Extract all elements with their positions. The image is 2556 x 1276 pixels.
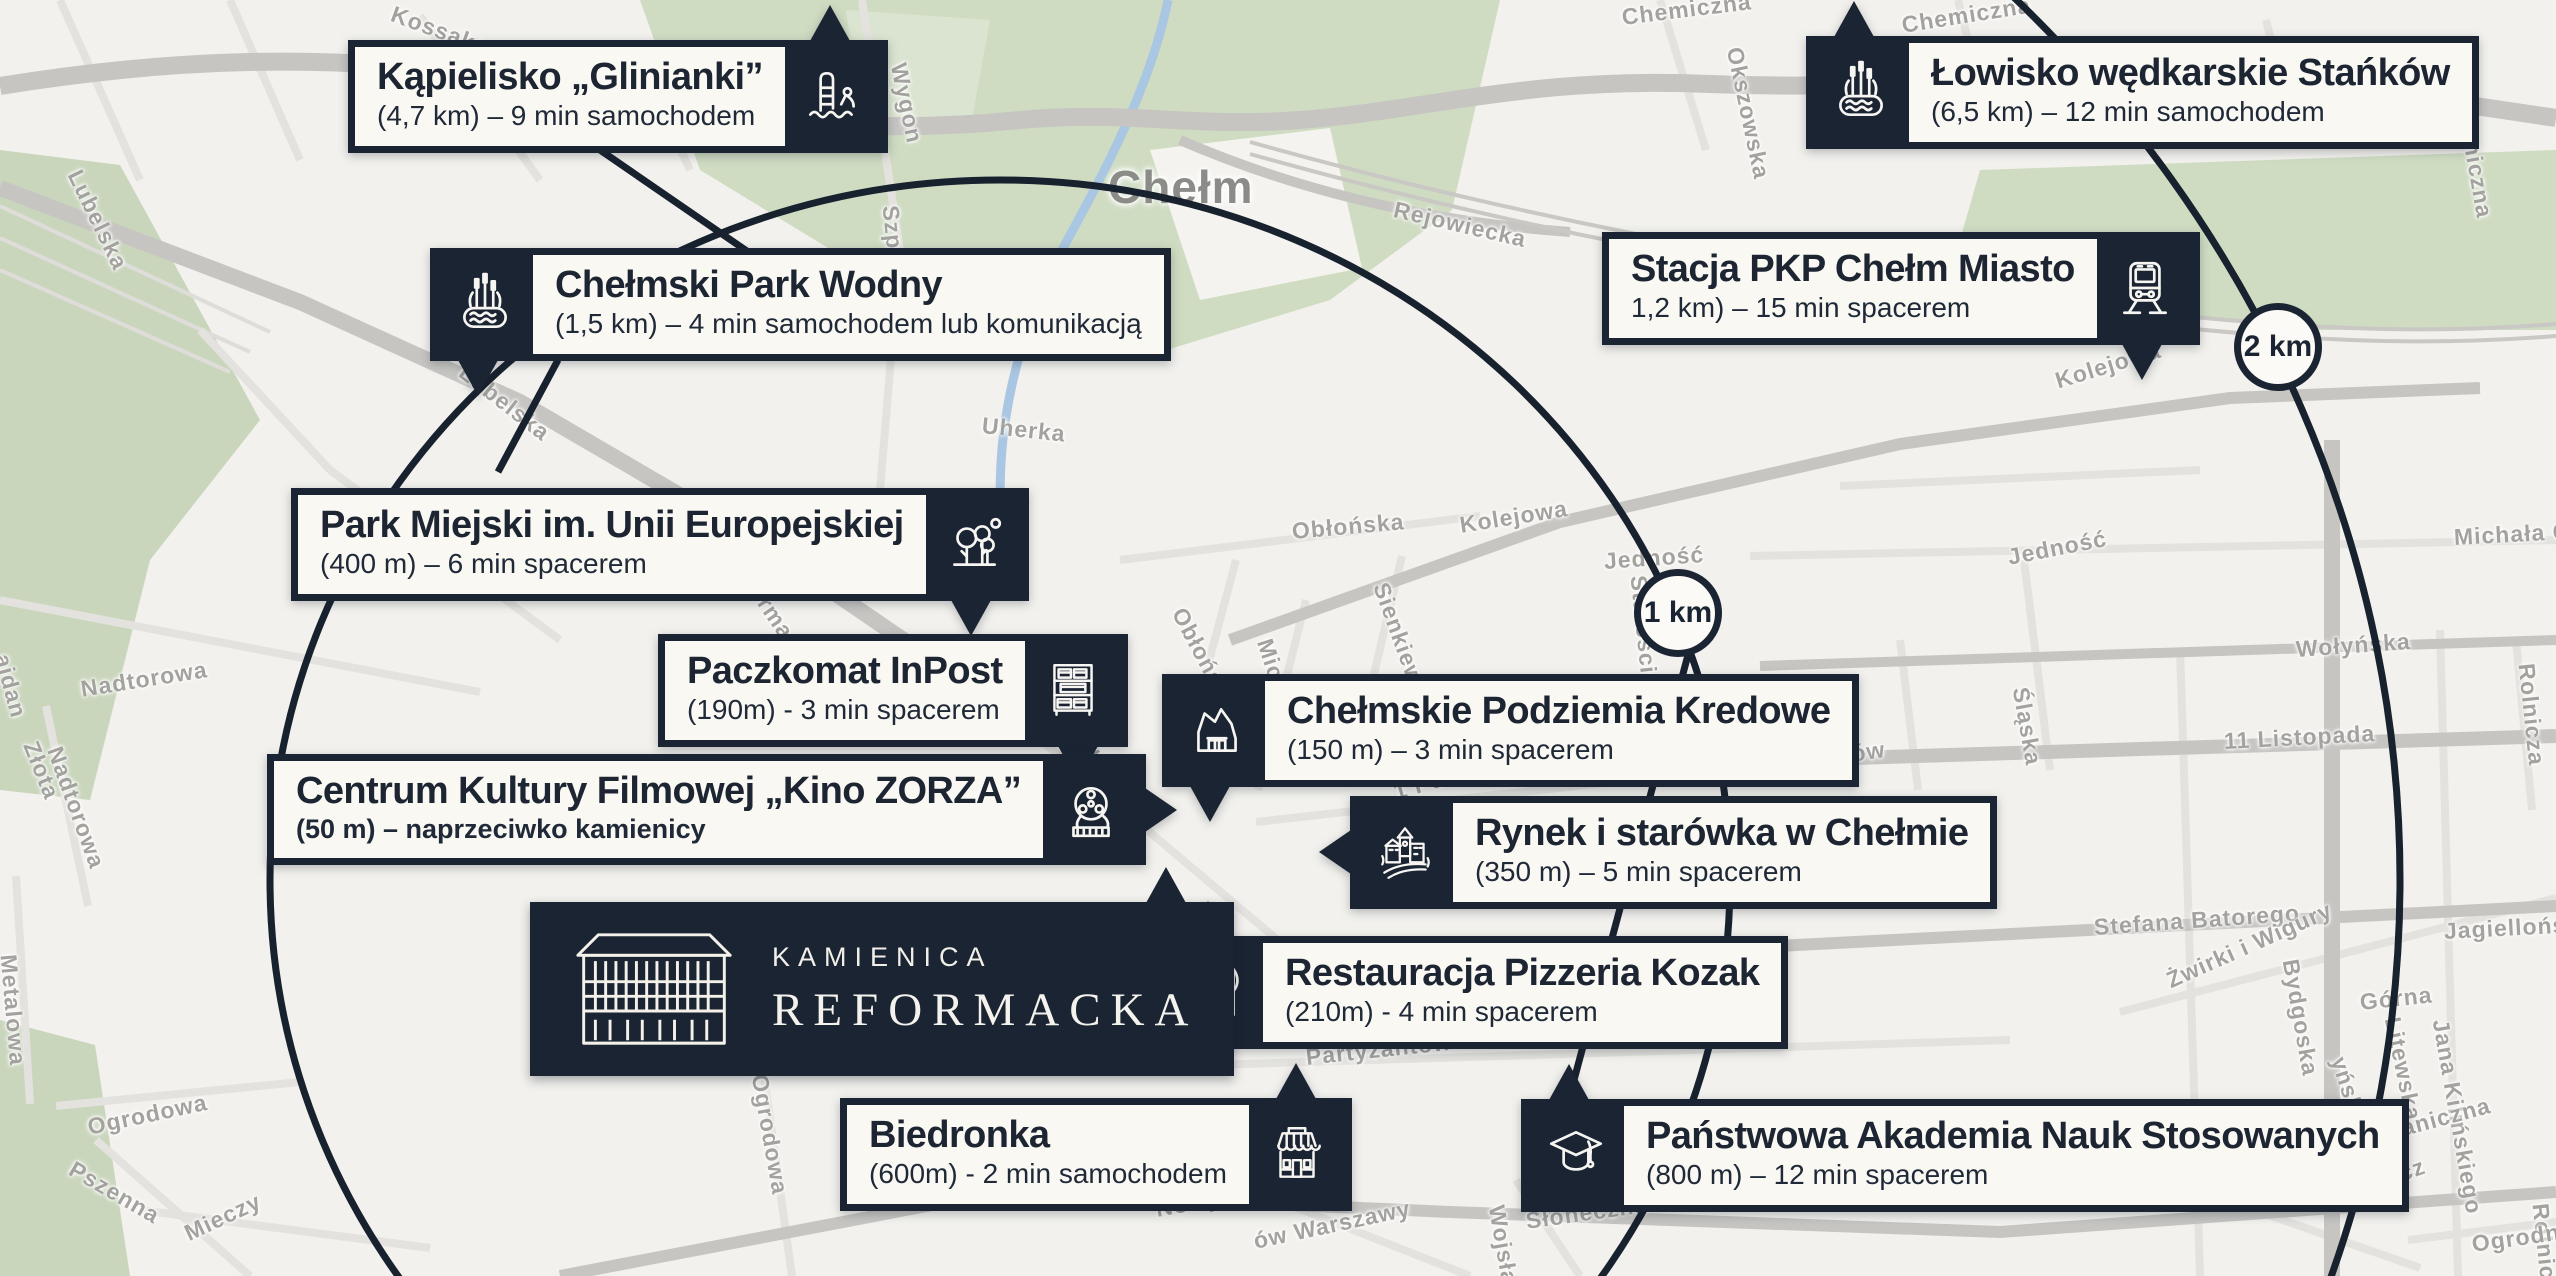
street-label: Okszowska [1721, 45, 1775, 182]
callout-title: Łowisko wędkarskie Stańków [1931, 52, 2450, 95]
train-icon [2097, 239, 2193, 338]
callout-kino-zorza: Centrum Kultury Filmowej „Kino ZORZA” (5… [267, 754, 1146, 865]
pointer [1190, 786, 1230, 822]
ring-badge-2km: 2 km [2234, 303, 2322, 391]
callout-park-wodny: Chełmski Park Wodny (1,5 km) – 4 min sam… [430, 248, 1171, 361]
callout-title: Chełmskie Podziemia Kredowe [1287, 690, 1830, 733]
callout-rynek: Rynek i starówka w Chełmie (350 m) – 5 m… [1350, 796, 1997, 909]
callout-subtitle: (600m) - 2 min samochodem [869, 1157, 1227, 1191]
street-label: Uherka [981, 412, 1067, 448]
callout-title: Państwowa Akademia Nauk Stosowanych [1646, 1115, 2380, 1158]
street-label: Rolnicza [2513, 662, 2551, 767]
pointer [2122, 344, 2162, 380]
callout-kozak: Restauracja Pizzeria Kozak (210m) - 4 mi… [1160, 936, 1788, 1049]
street-label: Ogrodowa [746, 1072, 794, 1197]
property-name-main: REFORMACKA [772, 983, 1198, 1037]
storefront-icon [1249, 1105, 1345, 1204]
street-label: Śląska [2007, 685, 2047, 767]
old-town-icon [1357, 803, 1453, 902]
fishing-pond-icon [1813, 43, 1909, 142]
city-label: Chełm [1108, 160, 1254, 214]
pointer [458, 360, 498, 396]
property-name-top: KAMIENICA [772, 942, 1198, 973]
street-label: Ogrodowa [85, 1089, 210, 1141]
street-label: Bydgoska [2277, 957, 2324, 1078]
callout-subtitle: 1,2 km) – 15 min spacerem [1631, 291, 2075, 325]
callout-title: Stacja PKP Chełm Miasto [1631, 248, 2075, 291]
pointer [1146, 867, 1186, 903]
callout-subtitle: (50 m) – naprzeciwko kamienicy [296, 813, 1021, 846]
callout-paczkomat: Paczkomat InPost (190m) - 3 min spacerem [658, 634, 1128, 747]
building-facade-icon [566, 926, 742, 1052]
street-label: Rejowiecka [1391, 196, 1529, 253]
callout-subtitle: (210m) - 4 min spacerem [1285, 995, 1759, 1029]
street-label: Górna [2359, 981, 2434, 1015]
street-label: 11 Listopada [2223, 720, 2376, 755]
pointer [1834, 1, 1874, 37]
street-label: Nadtorowa [79, 656, 209, 703]
pointer [951, 600, 991, 636]
callout-title: Restauracja Pizzeria Kozak [1285, 952, 1759, 995]
street-label: Wołyńska [2295, 628, 2412, 663]
street-label: Michała Ch [2453, 517, 2556, 551]
map-canvas: KossakaLubelskaWygonSzpitalnaChemicznaCh… [0, 0, 2556, 1276]
callout-subtitle: (150 m) – 3 min spacerem [1287, 733, 1830, 767]
park-trees-icon [926, 495, 1022, 594]
street-label: Mieczy [180, 1188, 265, 1247]
street-label: Obłońska [1291, 508, 1406, 545]
pointer [810, 5, 850, 41]
callout-stankow: Łowisko wędkarskie Stańków (6,5 km) – 12… [1806, 36, 2479, 149]
callout-stacja-pkp: Stacja PKP Chełm Miasto 1,2 km) – 15 min… [1602, 232, 2200, 345]
cave-icon [1169, 681, 1265, 780]
callout-subtitle: (350 m) – 5 min spacerem [1475, 855, 1968, 889]
callout-title: Chełmski Park Wodny [555, 264, 1142, 307]
street-label: Metalowa [0, 953, 31, 1066]
callout-subtitle: (190m) - 3 min spacerem [687, 693, 1003, 727]
callout-biedronka: Biedronka (600m) - 2 min samochodem [840, 1098, 1352, 1211]
callout-podziemia: Chełmskie Podziemia Kredowe (150 m) – 3 … [1162, 674, 1859, 787]
callout-title: Park Miejski im. Unii Europejskiej [320, 504, 904, 547]
parcel-locker-icon [1025, 641, 1121, 740]
film-reel-icon [1043, 761, 1139, 858]
callout-park-miejski: Park Miejski im. Unii Europejskiej (400 … [291, 488, 1029, 601]
pool-icon [785, 47, 881, 146]
street-label: Jedność [2005, 525, 2109, 571]
street-label: Chemiczna [1620, 0, 1753, 31]
callout-subtitle: (6,5 km) – 12 min samochodem [1931, 95, 2450, 129]
pointer [1145, 788, 1177, 832]
callout-title: Biedronka [869, 1114, 1227, 1157]
callout-subtitle: (400 m) – 6 min spacerem [320, 547, 904, 581]
water-park-icon [437, 255, 533, 354]
property-marker-kamienica-reformacka: KAMIENICA REFORMACKA [530, 902, 1234, 1076]
callout-title: Paczkomat InPost [687, 650, 1003, 693]
callout-subtitle: (4,7 km) – 9 min samochodem [377, 99, 763, 133]
street-label: Lubelska [62, 166, 133, 275]
pointer [1549, 1064, 1589, 1100]
callout-glinianki: Kąpielisko „Glinianki” (4,7 km) – 9 min … [348, 40, 888, 153]
callout-title: Rynek i starówka w Chełmie [1475, 812, 1968, 855]
street-label: Wygon [885, 61, 928, 146]
street-label: Nadtorowa [41, 743, 110, 872]
street-label: Jagiellońska [2443, 910, 2556, 945]
pointer [1276, 1063, 1316, 1099]
callout-title: Kąpielisko „Glinianki” [377, 56, 763, 99]
ring-badge-1km: 1 km [1634, 569, 1722, 657]
street-label: Kolejowa [1458, 495, 1570, 539]
callout-subtitle: (1,5 km) – 4 min samochodem lub komunika… [555, 307, 1142, 341]
pointer [1319, 830, 1351, 874]
callout-subtitle: (800 m) – 12 min spacerem [1646, 1158, 2380, 1192]
callout-title: Centrum Kultury Filmowej „Kino ZORZA” [296, 770, 1021, 813]
street-label: Chemiczna [1900, 0, 2033, 39]
street-label: Pszenna [64, 1156, 164, 1230]
graduation-cap-icon [1528, 1106, 1624, 1205]
callout-pans: Państwowa Akademia Nauk Stosowanych (800… [1521, 1099, 2409, 1212]
street-label: ajdan [0, 651, 32, 721]
